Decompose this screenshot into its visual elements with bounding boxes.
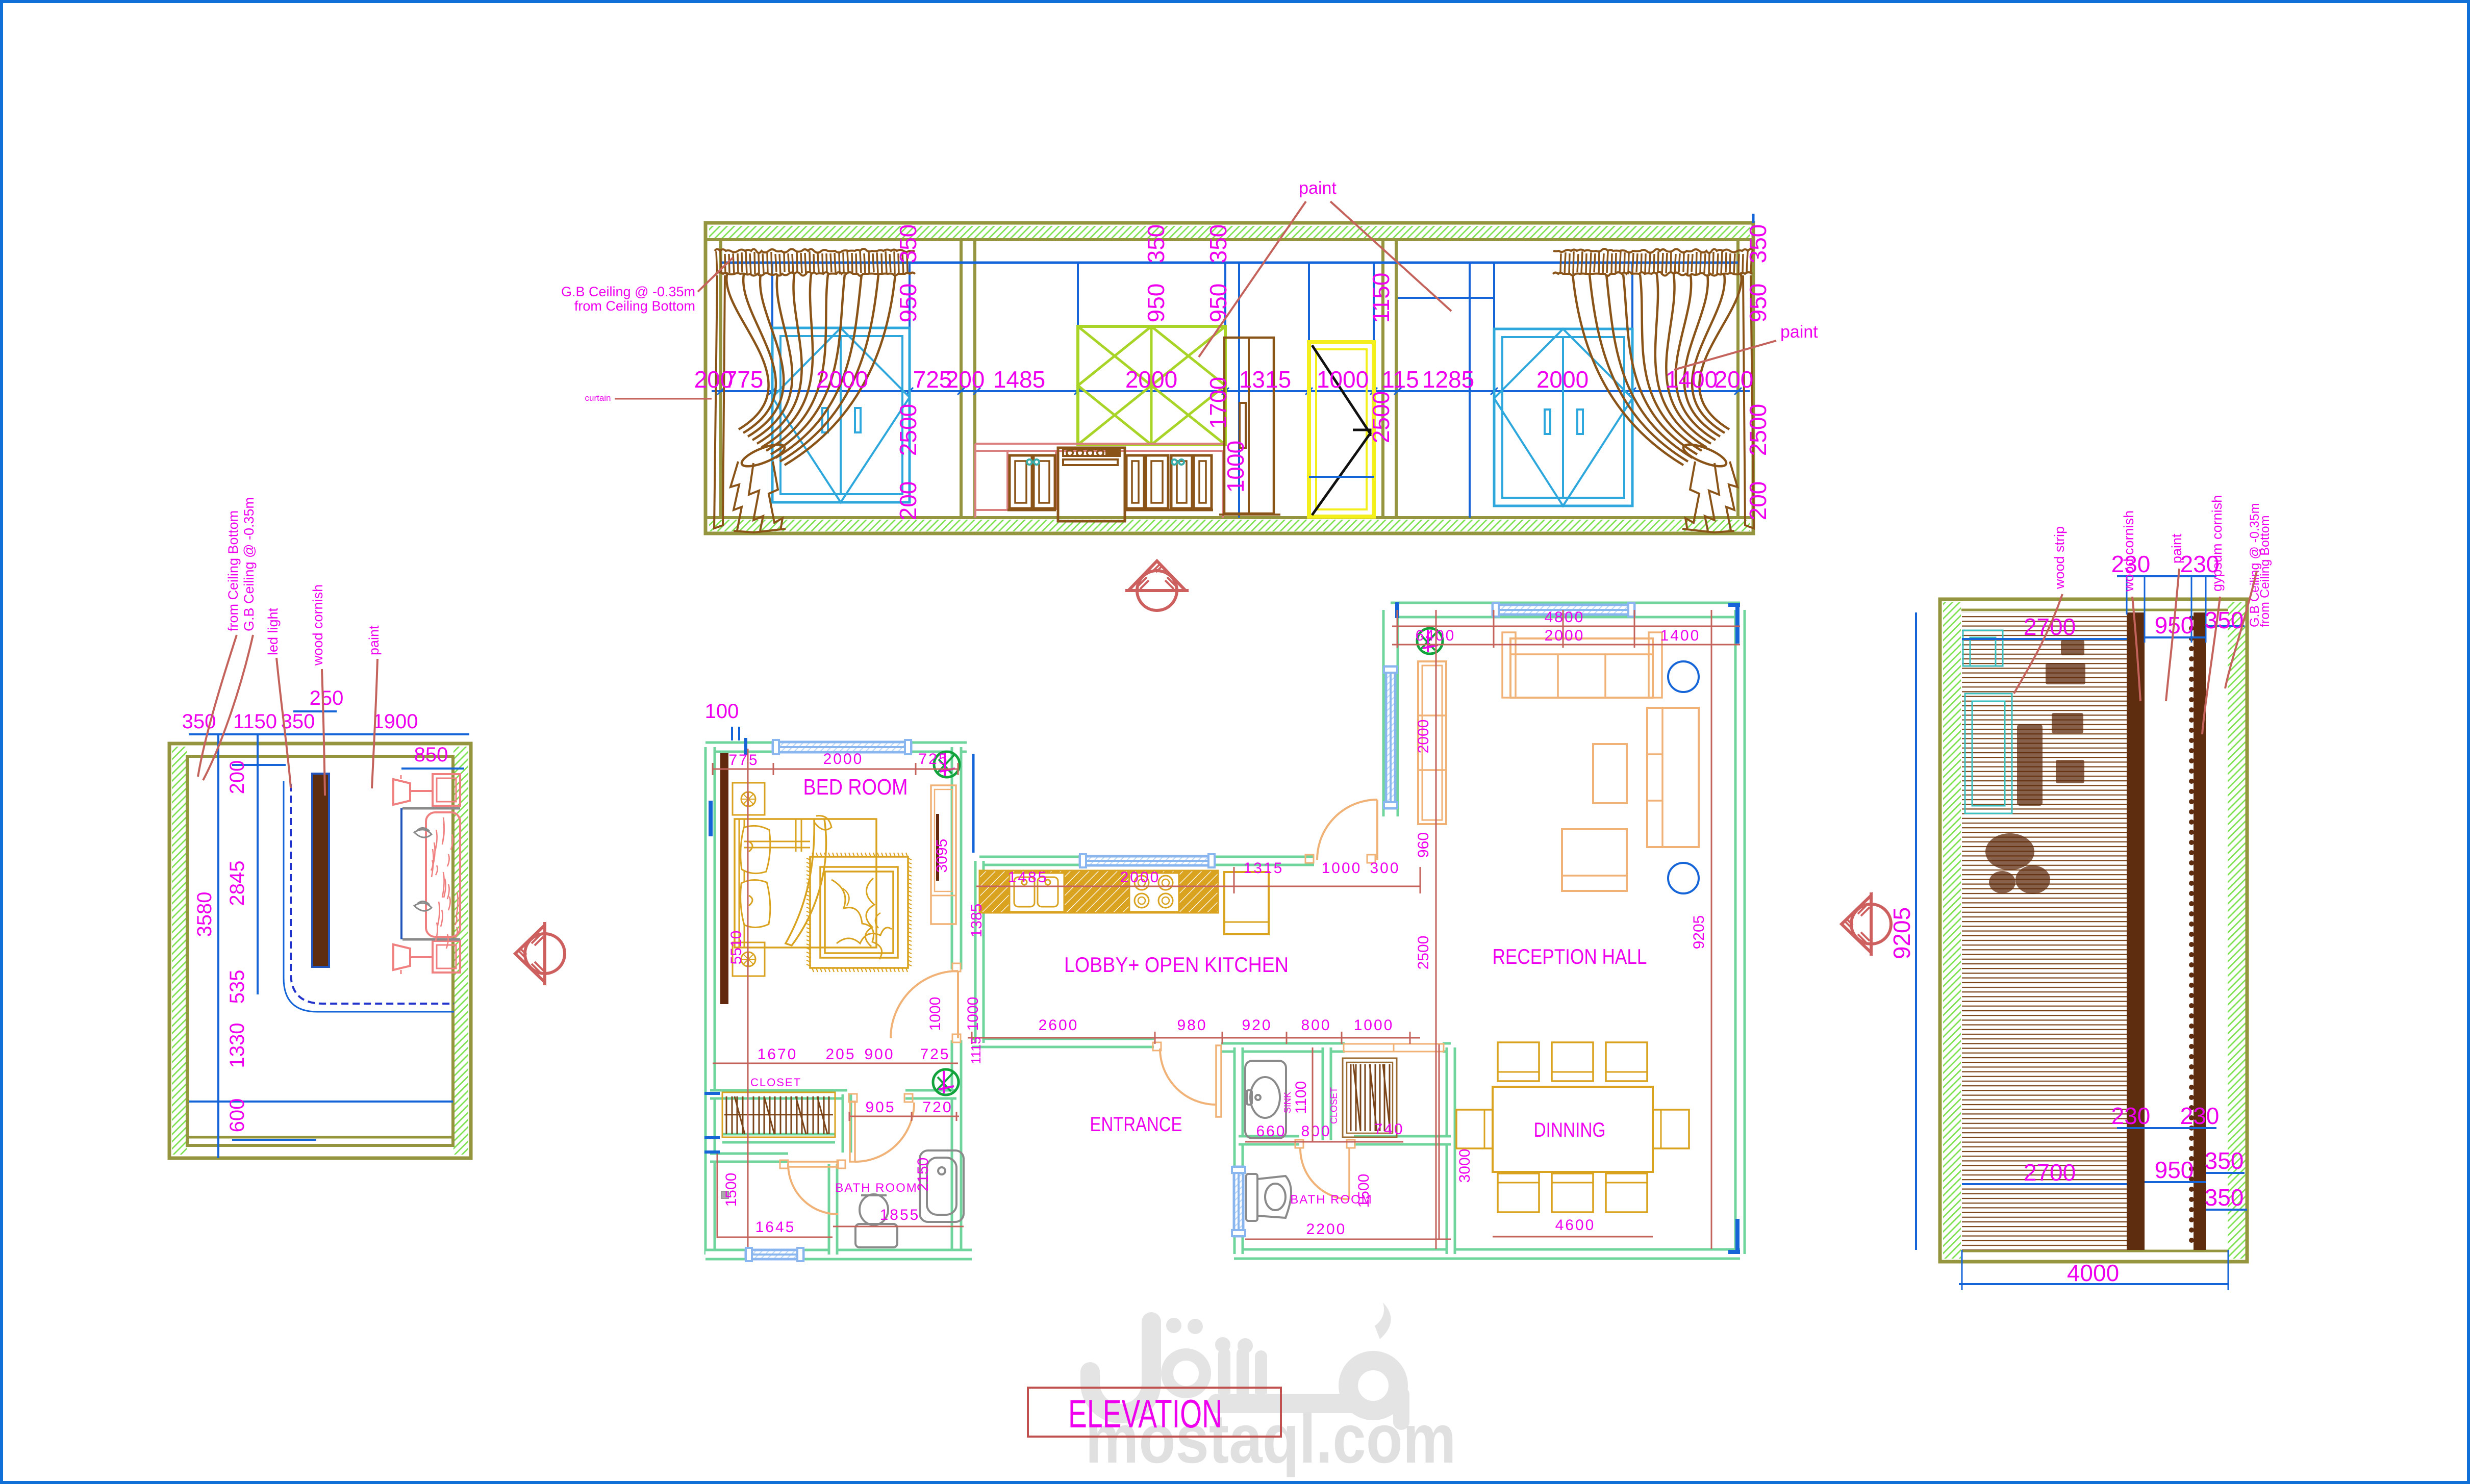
svg-text:350: 350 [2205,1184,2244,1211]
svg-text:from Ceiling Bottom: from Ceiling Bottom [2258,515,2272,627]
svg-text:3095: 3095 [934,839,950,873]
svg-text:1000: 1000 [965,997,981,1031]
svg-text:350: 350 [895,224,921,264]
svg-text:2000: 2000 [1545,627,1585,644]
svg-text:SINK: SINK [1282,1092,1293,1113]
svg-text:850: 850 [414,744,448,766]
svg-text:2000: 2000 [1536,366,1589,393]
svg-text:from Ceiling Bottom: from Ceiling Bottom [574,298,695,314]
svg-text:1900: 1900 [373,710,418,733]
svg-text:2000: 2000 [823,751,864,767]
svg-text:paint: paint [366,625,382,655]
svg-text:350: 350 [1143,224,1169,264]
svg-text:775: 775 [724,366,764,393]
svg-text:250: 250 [310,687,344,709]
svg-text:1150: 1150 [233,710,277,733]
svg-text:5510: 5510 [728,931,745,965]
svg-text:100: 100 [705,700,739,723]
svg-text:BED ROOM: BED ROOM [803,775,908,800]
svg-text:740: 740 [1374,1121,1404,1138]
svg-text:CLOSET: CLOSET [1329,1087,1339,1124]
svg-text:905: 905 [865,1099,895,1116]
svg-text:1330: 1330 [226,1023,248,1068]
svg-text:ELEVATION: ELEVATION [1068,1391,1222,1436]
svg-text:1855: 1855 [880,1207,920,1223]
svg-text:3000: 3000 [1456,1149,1473,1183]
svg-text:115: 115 [1381,366,1419,393]
svg-text:2600: 2600 [1039,1017,1079,1034]
svg-text:wood cornish: wood cornish [2121,510,2136,592]
svg-text:2000: 2000 [1415,720,1432,754]
svg-text:3580: 3580 [193,892,216,937]
svg-text:2700: 2700 [2024,1159,2076,1186]
svg-text:350: 350 [1745,224,1771,264]
svg-text:800: 800 [1301,1123,1331,1140]
svg-text:4000: 4000 [2067,1260,2119,1286]
svg-text:1315: 1315 [1244,860,1284,877]
svg-text:led light: led light [265,607,281,655]
svg-text:wood strip: wood strip [2052,526,2067,590]
svg-text:1285: 1285 [1422,366,1474,393]
svg-text:BATH ROOM: BATH ROOM [835,1181,918,1195]
svg-text:1315: 1315 [1239,366,1291,393]
svg-text:RECEPTION HALL: RECEPTION HALL [1493,944,1647,968]
svg-text:535: 535 [226,970,248,1004]
svg-text:200: 200 [226,760,248,795]
svg-text:350: 350 [281,710,315,733]
svg-text:1385: 1385 [968,904,985,938]
svg-text:G.B Ceiling @ -0.35m: G.B Ceiling @ -0.35m [241,497,257,631]
svg-text:2000: 2000 [1120,869,1161,886]
svg-text:9205: 9205 [1691,915,1707,950]
svg-text:paint: paint [2169,533,2184,564]
svg-text:200: 200 [1745,481,1771,521]
svg-text:950: 950 [1143,284,1169,323]
svg-text:G.B Ceiling @ -0.35m: G.B Ceiling @ -0.35m [561,284,695,299]
svg-text:950: 950 [1745,284,1771,323]
svg-text:800: 800 [1301,1017,1331,1034]
svg-text:2000: 2000 [1125,366,1177,393]
svg-text:paint: paint [1780,322,1818,342]
svg-text:curtain: curtain [585,393,611,403]
svg-text:950: 950 [895,284,921,323]
svg-text:from Ceiling Bottom: from Ceiling Bottom [225,510,241,631]
svg-text:230: 230 [2180,1103,2220,1129]
svg-text:350: 350 [1205,224,1231,264]
svg-text:1645: 1645 [755,1219,796,1236]
svg-text:2500: 2500 [895,404,921,456]
svg-text:4800: 4800 [1545,609,1585,626]
svg-text:725: 725 [918,751,948,767]
svg-text:1485: 1485 [1008,869,1048,886]
svg-text:1000: 1000 [1354,1017,1394,1034]
svg-text:1700: 1700 [1205,377,1231,429]
svg-text:350: 350 [2205,607,2244,633]
svg-text:BATH ROOM: BATH ROOM [1290,1193,1373,1207]
svg-text:300: 300 [1370,860,1400,877]
svg-text:LOBBY+ OPEN KITCHEN: LOBBY+ OPEN KITCHEN [1064,953,1289,977]
svg-text:ENTRANCE: ENTRANCE [1090,1113,1182,1136]
svg-text:900: 900 [864,1046,894,1063]
svg-text:1670: 1670 [758,1046,798,1063]
svg-text:1000: 1000 [1222,441,1249,493]
svg-text:980: 980 [1177,1017,1207,1034]
svg-text:950: 950 [2155,1157,2194,1183]
svg-text:1115: 1115 [968,1037,984,1064]
svg-text:9205: 9205 [1888,907,1915,959]
svg-text:1485: 1485 [993,366,1045,393]
svg-text:1150: 1150 [1368,273,1394,323]
svg-text:1000: 1000 [927,997,944,1031]
svg-text:2200: 2200 [1306,1221,1347,1238]
svg-text:660: 660 [1256,1123,1286,1140]
svg-text:200: 200 [1715,366,1754,393]
svg-text:2500: 2500 [1368,391,1394,443]
svg-text:920: 920 [1242,1017,1272,1034]
svg-text:CLOSET: CLOSET [750,1076,801,1089]
svg-text:wood cornish: wood cornish [310,584,325,666]
svg-text:1000: 1000 [1317,366,1369,393]
svg-text:200: 200 [946,366,985,393]
svg-text:200: 200 [895,481,921,521]
svg-text:gypsum cornish: gypsum cornish [2209,495,2225,592]
svg-text:720: 720 [922,1099,952,1116]
svg-text:725: 725 [920,1046,950,1063]
svg-text:2000: 2000 [816,366,868,393]
svg-text:1400: 1400 [1666,366,1718,393]
svg-text:4600: 4600 [1555,1217,1596,1234]
svg-text:DINNING: DINNING [1534,1119,1606,1141]
svg-text:2500: 2500 [1745,404,1771,456]
svg-text:230: 230 [2111,1103,2151,1129]
svg-text:2500: 2500 [1415,936,1432,970]
svg-text:1100: 1100 [1293,1081,1309,1114]
svg-text:775: 775 [728,752,759,769]
svg-text:205: 205 [825,1046,855,1063]
svg-text:600: 600 [226,1098,248,1133]
svg-text:paint: paint [1299,178,1337,198]
svg-text:350: 350 [2205,1147,2244,1174]
svg-text:1500: 1500 [723,1173,740,1207]
svg-text:2845: 2845 [226,861,248,906]
svg-text:1400: 1400 [1660,627,1701,644]
svg-text:960: 960 [1415,832,1432,858]
svg-text:1000: 1000 [1322,860,1362,877]
